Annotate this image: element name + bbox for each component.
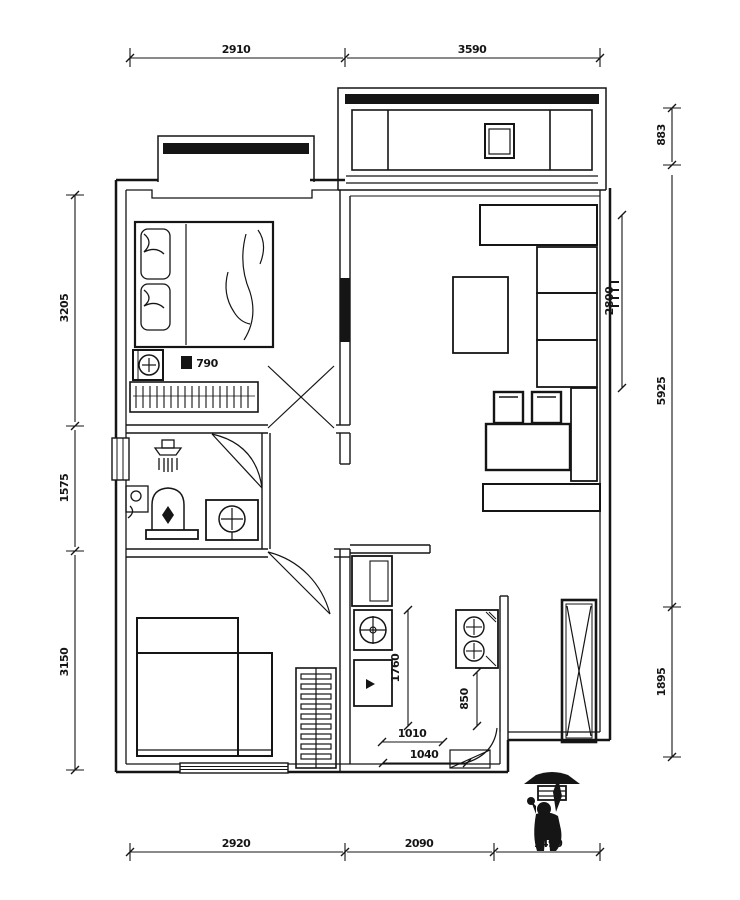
- coffee-table-icon: [486, 424, 570, 470]
- washbasin-icon: [206, 500, 258, 540]
- umbrella-icon: [524, 772, 580, 800]
- door-swing-entry: [450, 728, 497, 768]
- scale-figure-icon: [527, 778, 562, 851]
- floor-plan-canvas: 2910 3590 2920 2090 1490 3205 1575 3150 …: [0, 0, 740, 900]
- tv-cabinet-icon: [483, 484, 600, 511]
- bed2-icon: [137, 618, 272, 756]
- dim-top-left: 2910: [222, 43, 251, 56]
- hanger-hatch: [133, 386, 255, 408]
- toilet-icon: [146, 488, 198, 539]
- cooktop-icon: [456, 610, 498, 668]
- dim-bottom-mid: 2090: [405, 837, 434, 850]
- base-cabinet-icon: [354, 660, 392, 706]
- balcony: [338, 88, 606, 196]
- door-swing-bathroom: [212, 434, 262, 488]
- dim-living-depth: 2800: [603, 286, 616, 315]
- shower-icon: [155, 440, 181, 472]
- dim-left-bottom: 3150: [58, 647, 71, 676]
- sofa-icon: [537, 247, 597, 481]
- dim-bottom-left: 2920: [222, 837, 251, 850]
- dim-right-mid: 5925: [655, 377, 668, 406]
- dim-kitchen-depth: 1760: [389, 653, 402, 682]
- dining-table-icon: [453, 277, 508, 353]
- dim-top-right: 3590: [458, 43, 487, 56]
- window-left: [112, 438, 129, 480]
- dim-left-mid: 1575: [58, 474, 71, 503]
- balcony-box-icon: [485, 124, 514, 158]
- stool-icon: [494, 392, 561, 423]
- dimension-labels: 2910 3590 2920 2090 1490 3205 1575 3150 …: [58, 43, 668, 850]
- cabinet-icon: [480, 205, 597, 245]
- dim-left-top: 3205: [58, 294, 71, 323]
- washing-machine-icon: [133, 350, 163, 380]
- wardrobe-icon: [130, 382, 258, 412]
- bed-icon: [135, 222, 273, 347]
- dim-washer-tag-icon: [181, 356, 192, 369]
- pillow-icon: [141, 229, 170, 330]
- interior-walls: [126, 190, 508, 772]
- outer-walls: [116, 180, 610, 772]
- bay-window: [158, 136, 314, 182]
- shaft-x-icon: [562, 600, 596, 742]
- door-swing-bedroom1: [268, 366, 334, 428]
- door-swing-bedroom2: [268, 552, 330, 614]
- dim-cooktop-width: 850: [458, 687, 471, 709]
- dim-right-top: 883: [655, 124, 668, 145]
- corner-shelf-icon: [126, 486, 148, 518]
- radiator-icon: [296, 668, 336, 768]
- window-bottom: [180, 763, 288, 773]
- dim-right-bottom: 1895: [655, 668, 668, 697]
- dim-entry-width: 1040: [410, 748, 439, 761]
- fridge-icon: [352, 556, 392, 606]
- dim-kitchen-inner: 1010: [398, 727, 427, 740]
- dim-washer-width: 790: [196, 357, 218, 370]
- sink-icon: [354, 610, 392, 650]
